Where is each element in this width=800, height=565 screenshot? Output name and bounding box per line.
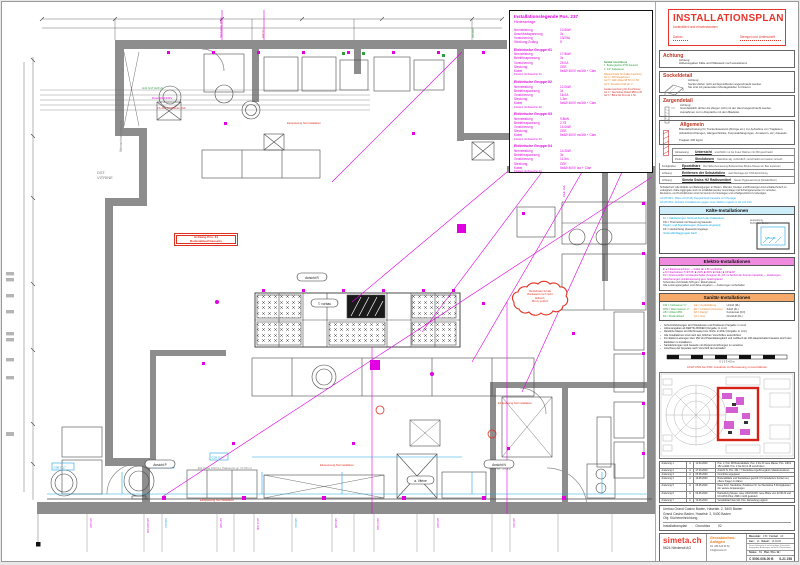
section-allgemein-text: Brandabschottung für Trockenbauwand (Abz…: [679, 128, 791, 142]
company-logo: simeta.ch: [663, 536, 703, 545]
format-label: Format:: [769, 535, 778, 538]
project-block: Umbau Grand Casino Baden, Haselstr. 2, 5…: [659, 505, 795, 531]
svg-text:Einspeisung NA Installation: Einspeisung NA Installation: [320, 463, 354, 467]
doc-number: 02: [718, 524, 722, 529]
rev-no: Änderung 7: [660, 499, 686, 502]
revision-table: Änderung 1A10.04.2020Pos. 2, Pos. 88 Bod…: [659, 461, 795, 503]
svg-text:Einspeisung NA Installation: Einspeisung NA Installation: [200, 498, 234, 502]
rev-index: A: [686, 484, 693, 490]
rev-index: A: [686, 469, 693, 472]
revision-row: Änderung 4A19.05.2020Bodenabläufe und St…: [660, 476, 794, 483]
rev-index: A: [686, 477, 693, 483]
svg-text:FS 400 Steckdose 16A: FS 400 Steckdose 16A: [157, 106, 186, 110]
date-label: Datum: [673, 35, 688, 41]
document-row: Installationsplan Grundriss 02: [663, 522, 791, 529]
hint-text: ersichtlich nur bei freien Flächen mit 3…: [715, 151, 773, 154]
legend-sanitary-column: Sanitär Anschlüsse 1. Bodengleiche Ø 50 …: [604, 61, 651, 98]
department-block: Grossküchen-Anlagen Tel. 056 619 62 62 i…: [707, 534, 747, 561]
scale-value: 1:50: [763, 535, 768, 538]
hint-label: Achtung:: [662, 172, 682, 175]
kaelte-header: Kälte-Installationen: [660, 207, 794, 215]
svg-text:G41 G20: G41 G20: [89, 518, 92, 528]
hint-row: Hinweisung:Untersichtersichtlich nur bei…: [672, 148, 795, 156]
plan-meta-block: Massstab:1:50Format:A0 Gez.:sbDatum:14.0…: [747, 534, 794, 561]
svg-text:Kühlzellen-Decke: Kühlzellen-Decke: [750, 222, 769, 225]
svg-text:G17 G28: G17 G28: [219, 518, 222, 528]
rev-no: Änderung 1: [660, 462, 686, 468]
leader-lines: [40, 90, 370, 110]
rev-text: Ansicht N, Pos. 431 / 7 Steckdose CgeS3 …: [715, 469, 794, 472]
sound-insulation-note: Schallschutz: Alle Abläufe und Befestigu…: [660, 186, 794, 196]
drawn-value: sb: [757, 540, 760, 543]
svg-text:a. Vitrine: a. Vitrine: [414, 479, 427, 483]
svg-text:G13 G20 G19: G13 G20 G19: [146, 518, 149, 534]
section-sockel-text: Achtung: Sockel dürfen nicht auf Epoxidb…: [679, 79, 791, 89]
hint-text: Bei Höhenbemassung Bodeneinbau Boden-Niv…: [703, 165, 780, 168]
legend-red-lines: Gerätezuordnung für Anschlüsse: G1 ¾" St…: [604, 88, 651, 98]
company-block: simeta.ch 5624 Niederwil AG: [660, 534, 707, 561]
svg-text:EG-Kalte Küche | Patisserie g: EG-Kalte Küche | Patisserie gr. 17.95 m²: [198, 466, 252, 470]
rev-no: Änderung 4: [660, 477, 686, 483]
revision-cloud-text: Steckdosen für die Rückwand noch nicht d…: [511, 290, 569, 304]
svg-text:Ansicht N: Ansicht N: [492, 463, 506, 467]
section-achtung-text: Achtung: Höhenangaben Kälte und Plättewe…: [679, 59, 791, 66]
status-value: B1: [759, 551, 762, 554]
revision-row: Änderung 5A26.05.2020Neue Kont. Steckdos…: [660, 483, 794, 490]
hint-text: Neues Hygienekonzept (Details/Werk): [734, 179, 776, 182]
project-line3: Obj: Kücheneinrichtung: [663, 516, 791, 520]
warning-label: Achtung Pos. 31 Bodenablauf bauseits: [174, 233, 238, 246]
legend-kaelte: Kälte-Installationen KL = Kälteleitungen…: [659, 206, 795, 254]
elektro-lines: E ● = Elektroanschluss — Kabel ab 1.50 v…: [663, 268, 791, 288]
leader-labels: G41 G17 G20 2x Dose NR4 230V FS 400 Stec…: [142, 86, 186, 110]
legend-group2-labels: Nennleistung Betriebsspannung Vorsicheru…: [514, 85, 560, 106]
hint-label: Achtung:: [662, 179, 682, 182]
scale-ruler: 0 1 2 3 4 5 m: [666, 354, 788, 363]
note-item: Für Elektro-Leitungen über 150 sind Pote…: [660, 337, 794, 344]
company-address: 5624 Niederwil AG: [663, 546, 703, 550]
department-name: Grossküchen-Anlagen: [710, 536, 743, 544]
rev-no: Änderung 3: [660, 473, 686, 476]
bottom-annotations: G41 G20 G13 G20 G19 G17 G28 G44.1 G08 G3…: [87, 514, 612, 552]
svg-text:KW ½": KW ½": [261, 29, 265, 38]
legend-group1-values: 17.5kW 3x 25.0A CEE 5x6Ø 400V m²/16t + C…: [560, 52, 596, 73]
rev-text: Pos. 2, Pos. 88 Bodenabläufe; Pos. 3 bis…: [715, 462, 794, 468]
doc-type: Installationsplan: [663, 524, 687, 529]
legend-group2-values: 12.0kW 3x 16.0A 1.3m 5x6Ø 400V m²/16t + …: [560, 85, 596, 106]
view-ovals: Ansicht P Ansicht N Ansicht R T. vorbau …: [145, 273, 514, 484]
revision-row: Änderung 3A05.05.2020Grundriss angepasst: [660, 472, 794, 476]
hint-label: Hinweisung:: [675, 151, 695, 154]
hint-row: Achtung:Entfernen der Schutzfoliennach M…: [659, 170, 795, 177]
revision-row: Änderung 7A10.06.2020Verteilablauf Gas i…: [660, 498, 794, 502]
dim-tags: [6, 272, 14, 436]
svg-text:Einspeisung NA Installation: Einspeisung NA Installation: [498, 401, 532, 405]
hint-label: Fertigböden:: [662, 165, 682, 168]
legend-group4-note: Position Verbraucher 04: [514, 170, 648, 173]
svg-text:Steckdose 400V: Steckdose 400V: [219, 17, 223, 38]
rev-index: A: [686, 499, 693, 502]
svg-text:Weinschrank gekühlt: Weinschrank gekühlt: [119, 121, 123, 152]
rev-date: 05.05.2020: [693, 473, 715, 476]
hint-term: Simeta Swiss H2 Radiusmöbel: [682, 178, 731, 182]
hint-term: Entfernen der Schutzfolien: [682, 171, 725, 175]
date-label: Datum:: [761, 540, 769, 543]
svg-text:G26 G34: G26 G34: [212, 456, 225, 460]
kaelte-line: Verbundkühlaggregate Dach: [663, 232, 746, 236]
hint-term: Epoxidharz: [682, 164, 700, 168]
svg-text:G41 G17 G20 2x: G41 G17 G20 2x: [142, 86, 164, 90]
zargen-sketch: [663, 106, 677, 124]
plan-number-label: Plan / Pos. Nr.:: [764, 551, 781, 554]
section-allgemein: Allgemein Brandabschottung für Trockenba…: [659, 120, 795, 145]
rev-text: Bodenabläufe und Steckdosen geprüft; KV-…: [715, 477, 794, 483]
elektro-line: KV = Kleinverteiler mit Hauptschalter (G…: [663, 274, 791, 281]
svg-text:Ansicht R: Ansicht R: [305, 276, 319, 280]
hint-label: Punkt:: [675, 158, 695, 161]
hint-row: Punkt:SteckdosenStandorte alg. verbindli…: [672, 156, 795, 163]
rev-date: 03.06.2020: [693, 492, 715, 498]
hint-text: Standorte alg. verbindlich, verschraubt …: [717, 158, 782, 161]
svg-text:G26 G34: G26 G34: [294, 518, 297, 528]
rev-index: A: [686, 492, 693, 498]
doc-view: Grundriss: [695, 524, 710, 529]
rev-no: Änderung 5: [660, 484, 686, 490]
legend-intro-values: 10.5kW 3x 13/25A 5: [560, 28, 571, 45]
rev-no: Änderung 2: [660, 469, 686, 472]
elektro-header: Elektro-Installationen: [660, 258, 794, 266]
legend-intro-labels: Nennleistung Anschlussspannung Vorsicher…: [514, 28, 560, 45]
title-block-footer: simeta.ch 5624 Niederwil AG Grossküchen-…: [659, 533, 795, 561]
section-zargen-text: Achtung: Grundsätzlich dürfen die Zargen…: [679, 104, 791, 114]
rev-text: Neue Kont. Steckdose; Positionen Nr. bei…: [715, 484, 794, 490]
section-zargendetail: Zargendetail Achtung: Grundsätzlich dürf…: [659, 95, 795, 117]
overview-plan: [659, 372, 795, 459]
installation-legend-box: Installationslegende Pos. 237 Hinteranla…: [509, 10, 653, 173]
section-achtung: Achtung Achtung: Höhenangaben Kälte und …: [659, 50, 795, 68]
email: info@simeta.ch: [710, 549, 743, 552]
rev-no: Änderung 6: [660, 492, 686, 498]
hint-row: Achtung:Simeta Swiss H2 RadiusmöbelNeues…: [659, 177, 795, 184]
svg-text:G40 G20: G40 G20: [436, 518, 439, 528]
sidebar: INSTALLATIONSPLAN kontrolliert und einve…: [655, 2, 798, 561]
rev-date: 17.04.2020: [693, 469, 715, 472]
drawing-sheet: G08 G13 G26 G34 G00 G17 G41 G17 G20 2x D…: [2, 2, 798, 561]
plan-number: C 5000-006-00 B: [749, 557, 773, 561]
hint-row: Fertigböden:EpoxidharzBei Höhenbemassung…: [659, 163, 795, 170]
plan-extra-number: S-21 258: [779, 557, 792, 561]
legend-group4-values: 14.2kW 3x 11.5m CEE 5x6Ø 400V Iso + Clan: [560, 149, 591, 170]
kaelte-lines: KL = Kälteleitungen Verbund durch den Kä…: [663, 217, 746, 251]
svg-text:G08 G13: G08 G13: [164, 518, 167, 528]
page-title: INSTALLATIONSPLAN: [673, 13, 781, 24]
stamp-label: Stempel und Unterschrift: [740, 35, 781, 41]
drawn-label: Gez.:: [749, 540, 755, 543]
title-subtitle: kontrolliert und einverstanden: [673, 25, 781, 29]
svg-text:AB Ø50: AB Ø50: [471, 28, 475, 38]
sanitaer-col3: Umluft (RL) Zuluft (ZL) Kondensat (KO) D…: [727, 304, 746, 318]
rev-text: Grundriss angepasst: [715, 473, 794, 476]
rev-date: 19.05.2020: [693, 477, 715, 483]
hint-rows: Hinweisung:Untersichtersichtlich nur bei…: [659, 148, 795, 184]
revision-row: Änderung 2A17.04.2020Ansicht N, Pos. 431…: [660, 468, 794, 472]
status-label: Status:: [749, 551, 757, 554]
svg-text:G12.2 G48: G12.2 G48: [376, 518, 379, 530]
dimension-lines: [24, 17, 504, 547]
revision-row: Änderung 6A03.06.2020Darstellung Niveau;…: [660, 491, 794, 498]
sanitaer-header: Sanitär-Installationen: [660, 294, 794, 302]
scale-label: Massstab:: [749, 535, 761, 538]
rev-date: 10.04.2020: [693, 462, 715, 468]
svg-text:G30 G08: G30 G08: [334, 518, 337, 528]
hint-text: nach Montage der CNS-Einrichtung: [728, 172, 767, 175]
cyan-note-1: ACHTUNG: Pläne A0 (P+B) Doppelcheck baus…: [660, 197, 794, 200]
legend-orange-lines: Wasserzufuhr für Kaffeemaschine: G1 ¾" K…: [604, 73, 651, 86]
rev-text: Darstellung Niveau; neue UK2/UK200; neue…: [715, 492, 794, 498]
legend-group3-values: 9.8kW 2.75 14.0kW CEE 5x6Ø 400V m²/16t +…: [560, 117, 596, 138]
scale-bar: 0 1 2 3 4 5 m ACHTUNG bei PDF: Ausdruck …: [659, 354, 795, 369]
revision-row: Änderung 1A10.04.2020Pos. 2, Pos. 88 Bod…: [660, 462, 794, 468]
date-value: 14.04.20: [772, 540, 781, 543]
rev-index: A: [686, 462, 693, 468]
sanitaer-col2: GE = Gerätefüllung EN = enthärtet (Osmos…: [694, 304, 723, 318]
allgemein-hatch: [663, 130, 669, 156]
svg-text:G44.1 G08: G44.1 G08: [256, 518, 259, 530]
note-item: Anschluss der Apparate nach Vorschrift d…: [660, 347, 794, 350]
svg-text:G04 G34: G04 G34: [512, 518, 515, 528]
svg-text:Ansicht P: Ansicht P: [153, 463, 166, 467]
elektro-line: Alle Leistungsangaben sind Zirka-Angaben…: [663, 284, 791, 287]
svg-text:Kühlzelle: Kühlzelle: [765, 236, 776, 240]
legend-group3-labels: Nennleistung Betriebsspannung Vorsicheru…: [514, 117, 560, 138]
section-sockeldetail: Sockeldetail Achtung: Sockel dürfen nich…: [659, 71, 795, 93]
rev-index: A: [686, 473, 693, 476]
hint-term: Steckdosen: [695, 157, 714, 161]
svg-text:0 1 2 3 4: 0 1 2 3 4 5 m: [719, 359, 734, 362]
legend-elektro: Elektro-Installationen E ● = Elektroansc…: [659, 257, 795, 291]
sanitaer-col1: KW = Kaltwasser ½" WW = Warmwasser ¾" AB…: [663, 304, 690, 318]
hint-term: Untersicht: [695, 150, 712, 154]
legend-group3-note: Position Verbraucher 03: [514, 138, 648, 141]
rev-date: 10.06.2020: [693, 499, 715, 502]
svg-text:G00 G17: G00 G17: [54, 466, 67, 470]
warning-line2: Bodenablauf bauseits: [176, 240, 236, 244]
svg-text:T. vorbau: T. vorbau: [318, 302, 331, 306]
kuehlzelle-diagram: Aussparung Kühlzellen-Decke Kühlzelle: [749, 217, 791, 251]
svg-text:Dose NR4 230V: Dose NR4 230V: [152, 96, 172, 100]
legend-sanitaer: Sanitär-Installationen KW = Kaltwasser ½…: [659, 293, 795, 321]
svg-text:CEE 16A: CEE 16A: [562, 185, 566, 197]
approval-title-box: INSTALLATIONSPLAN kontrolliert und einve…: [668, 9, 786, 46]
sockel-sketch: [663, 81, 685, 96]
legend-group1-labels: Nennleistung Betriebsspannung Vorsicheru…: [514, 52, 560, 73]
scale-caption: ACHTUNG bei PDF: Ausdruck mit Bemassung …: [659, 365, 795, 369]
overview-plan-drawing: [660, 373, 794, 457]
legend-subtitle: Hinteranlage: [514, 20, 648, 25]
rev-date: 26.05.2020: [693, 484, 715, 490]
legend-group2-note: Position Verbraucher 02: [514, 106, 648, 109]
general-notes-list: Schutzrohrleitungen sind Steckdosen und …: [660, 324, 794, 351]
svg-text:Einspeisung NA Installation: Einspeisung NA Installation: [287, 121, 321, 125]
legend-group4-labels: Nennleistung Betriebsspannung Vorsicheru…: [514, 149, 560, 170]
format-value: A0: [780, 535, 783, 538]
rev-text: Verteilablauf Gas inkl. Pos. Darstellung…: [715, 499, 794, 502]
svg-text:VITRINE: VITRINE: [97, 175, 113, 180]
legend-sanitary-lines: 1. Bodengleiche Ø 50 bauseits 2. 1/2" Ka…: [604, 64, 651, 71]
cyan-note-2: ACHTUNG: Aktuelle Installationen gegen n…: [660, 201, 794, 204]
